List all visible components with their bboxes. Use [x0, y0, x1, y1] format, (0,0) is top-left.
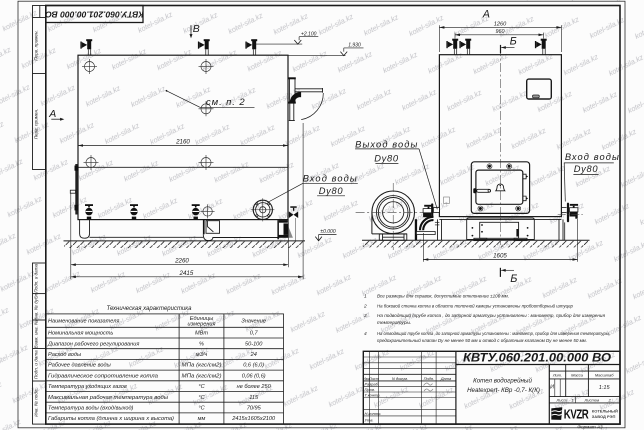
- svg-text:°С: °С: [198, 384, 205, 390]
- svg-text:24: 24: [250, 352, 257, 358]
- svg-text:Б: Б: [510, 36, 517, 48]
- svg-text:2415: 2415: [179, 270, 194, 277]
- svg-text:3: 3: [364, 313, 367, 319]
- svg-text:А: А: [48, 108, 56, 120]
- svg-text:Лит.: Лит.: [552, 372, 562, 377]
- svg-text:Лист: Лист: [556, 398, 568, 403]
- svg-text:+2.100: +2.100: [301, 32, 317, 38]
- svg-text:1.930: 1.930: [348, 43, 361, 49]
- svg-text:Heatexpert- КВр -0,7- К(К): Heatexpert- КВр -0,7- К(К): [467, 387, 540, 394]
- svg-text:Значение: Значение: [241, 319, 266, 325]
- svg-text:ЗАВОД РЭП: ЗАВОД РЭП: [592, 414, 616, 419]
- svg-text:Котел водогрейный: Котел водогрейный: [473, 378, 532, 385]
- svg-text:Лист: Лист: [368, 376, 380, 381]
- svg-text:см. п. 2: см. п. 2: [206, 97, 246, 108]
- svg-text:0,6 (6,0): 0,6 (6,0): [243, 363, 264, 369]
- svg-text:В: В: [193, 23, 200, 35]
- svg-text:KVZR: KVZR: [564, 406, 589, 421]
- svg-text:Перв. примен.: Перв. примен.: [34, 109, 39, 140]
- svg-text:На подводящий трубе котла ,: На подводящий трубе котла , до запорной …: [377, 312, 605, 319]
- svg-text:Т.контр.: Т.контр.: [365, 393, 381, 398]
- svg-text:Дата: Дата: [440, 376, 452, 381]
- svg-text:2160: 2160: [175, 139, 190, 146]
- svg-text:Температура воды (вход/выход): Температура воды (вход/выход): [48, 406, 134, 412]
- svg-text:На боковой стенка котла в обла: На боковой стенка котла в области топочн…: [377, 303, 573, 310]
- svg-text:Масса: Масса: [571, 372, 584, 377]
- svg-text:115: 115: [249, 395, 259, 401]
- svg-text:Dy80: Dy80: [319, 186, 344, 196]
- svg-text:измерения: измерения: [188, 321, 216, 327]
- svg-text:%: %: [199, 341, 204, 347]
- svg-text:Подп.: Подп.: [424, 376, 435, 381]
- svg-text:Габариты котла (длинна х ширин: Габариты котла (длинна х ширина х высота…: [48, 416, 174, 422]
- svg-text:КВТУ.060.201.00.000 ВО: КВТУ.060.201.00.000 ВО: [463, 353, 611, 365]
- svg-text:мм: мм: [198, 416, 206, 422]
- svg-text:±0.000: ±0.000: [320, 229, 335, 235]
- svg-text:2260: 2260: [174, 258, 189, 265]
- svg-text:4: 4: [364, 331, 367, 337]
- svg-text:50-100: 50-100: [245, 341, 263, 347]
- svg-text:1605: 1605: [493, 253, 507, 260]
- svg-text:МПа (кгс/см2): МПа (кгс/см2): [182, 373, 222, 379]
- svg-text:А: А: [482, 9, 490, 21]
- svg-text:960: 960: [496, 29, 505, 35]
- svg-text:МПа (кгс/см2): МПа (кгс/см2): [182, 363, 222, 369]
- svg-text:2415х1605х2100: 2415х1605х2100: [231, 416, 276, 422]
- svg-text:Максимальная рабочая температу: Максимальная рабочая температура воды: [48, 395, 168, 401]
- svg-text:На отводящий трубе котла ,до з: На отводящий трубе котла ,до запорной ар…: [377, 330, 610, 337]
- svg-text:Н.контр.: Н.контр.: [365, 411, 382, 416]
- svg-text:0,7: 0,7: [250, 331, 259, 337]
- svg-text:Вход воды: Вход воды: [565, 152, 620, 162]
- svg-text:Инв. № подл.: Инв. № подл.: [34, 388, 39, 417]
- svg-text:не более 250: не более 250: [237, 384, 272, 390]
- svg-text:°С: °С: [198, 406, 205, 412]
- svg-text:1: 1: [572, 398, 574, 403]
- svg-text:Температура уходящих газов: Температура уходящих газов: [48, 384, 127, 390]
- svg-text:температуры.: температуры.: [377, 321, 411, 326]
- svg-text:Номинальная мощность: Номинальная мощность: [48, 331, 113, 337]
- svg-text:Листов: Листов: [584, 398, 600, 403]
- svg-text:Рабочее давление воды: Рабочее давление воды: [48, 363, 111, 369]
- svg-text:Разраб.: Разраб.: [365, 382, 379, 387]
- svg-text:2: 2: [363, 304, 367, 310]
- svg-text:Формат А3: Формат А3: [577, 424, 603, 429]
- svg-text:Наименование показателя: Наименование показателя: [48, 319, 119, 325]
- svg-text:Подп. и дата: Подп. и дата: [34, 263, 39, 292]
- svg-text:Все размеры для справок, допус: Все размеры для справок, допустимые откл…: [377, 294, 509, 300]
- svg-text:°С: °С: [198, 395, 205, 401]
- svg-text:Масштаб: Масштаб: [595, 372, 614, 377]
- svg-text:Утв.: Утв.: [365, 417, 374, 422]
- svg-text:1:15: 1:15: [599, 385, 611, 391]
- svg-text:Техническая характеристика: Техническая характеристика: [107, 306, 193, 312]
- svg-text:70/95: 70/95: [247, 406, 262, 412]
- svg-text:0,06 (0,6): 0,06 (0,6): [242, 373, 266, 379]
- svg-text:N докум.: N докум.: [392, 376, 408, 381]
- svg-text:Подп. и дата: Подп. и дата: [34, 350, 39, 379]
- svg-text:1260: 1260: [494, 22, 507, 28]
- svg-text:Инв. № дубл.: Инв. № дубл.: [34, 293, 39, 321]
- svg-text:1: 1: [364, 294, 367, 300]
- svg-text:Пров.: Пров.: [365, 387, 376, 392]
- svg-text:Выход воды: Выход воды: [355, 140, 418, 150]
- svg-text:Б: Б: [510, 273, 517, 285]
- svg-text:Перв. примен.: Перв. примен.: [34, 30, 39, 61]
- svg-text:КВТУ.060.201.00.000 ВО: КВТУ.060.201.00.000 ВО: [45, 10, 144, 20]
- svg-text:м3/ч: м3/ч: [196, 352, 207, 358]
- svg-text:Вход воды: Вход воды: [303, 173, 358, 183]
- svg-text:предохранительный клапан Dy н: предохранительный клапан Dy не менее 50 …: [377, 337, 587, 344]
- svg-text:МВт: МВт: [195, 331, 208, 337]
- svg-text:Гидравлическое сопротивление к: Гидравлическое сопротивление котла: [48, 373, 158, 379]
- svg-text:Расход воды: Расход воды: [48, 352, 81, 358]
- svg-text:Dy80: Dy80: [374, 153, 399, 163]
- svg-text:Взам. инв. №: Взам. инв. №: [34, 320, 39, 348]
- svg-text:Диапазон рабочего регулировани: Диапазон рабочего регулирования: [47, 341, 139, 347]
- svg-text:Dy80: Dy80: [574, 164, 599, 174]
- svg-text:И: И: [550, 385, 554, 391]
